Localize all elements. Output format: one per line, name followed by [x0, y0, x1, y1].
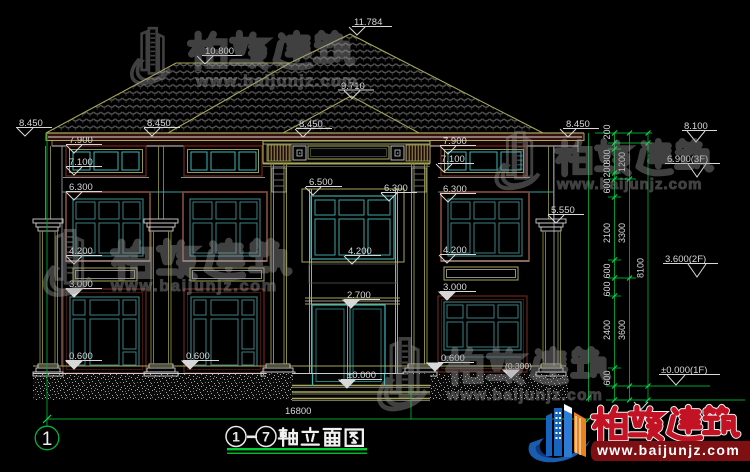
svg-text:3600: 3600 — [617, 320, 627, 340]
svg-text:1: 1 — [42, 429, 53, 450]
svg-text:2400: 2400 — [602, 320, 612, 340]
svg-text:www.baijunjz.com: www.baijunjz.com — [110, 278, 278, 295]
svg-text:www.baijunjz.com: www.baijunjz.com — [556, 176, 702, 193]
svg-text:www.baijunjz.com: www.baijunjz.com — [596, 442, 740, 458]
svg-text:www.baijunjz.com: www.baijunjz.com — [195, 73, 358, 90]
svg-text:8100: 8100 — [636, 258, 646, 278]
svg-text:16800: 16800 — [285, 406, 311, 417]
svg-text:600: 600 — [602, 263, 612, 278]
svg-text:7: 7 — [262, 429, 270, 445]
svg-text:1: 1 — [232, 429, 240, 445]
svg-text:2100: 2100 — [602, 223, 612, 243]
svg-text:600: 600 — [602, 281, 612, 296]
svg-text:3300: 3300 — [617, 223, 627, 243]
svg-text:200: 200 — [602, 124, 612, 139]
svg-text:www.baijunjz.com: www.baijunjz.com — [446, 387, 603, 404]
